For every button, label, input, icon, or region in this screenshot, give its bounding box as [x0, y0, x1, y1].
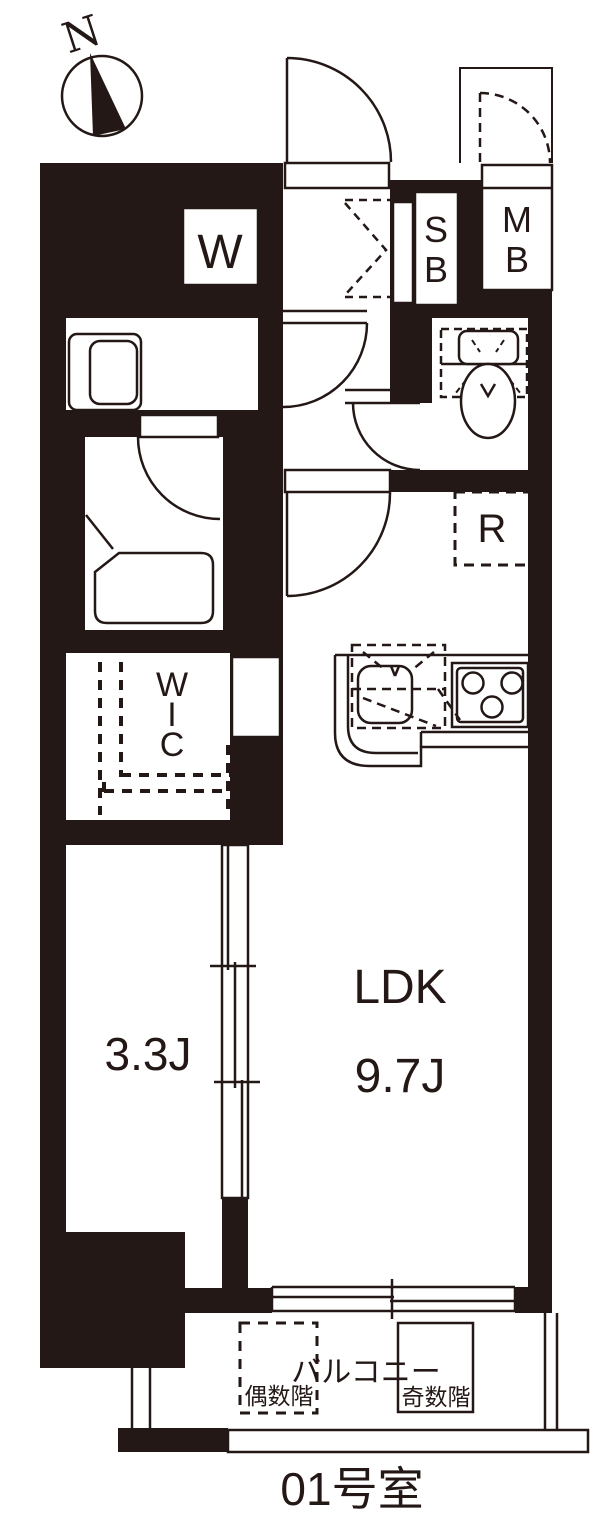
entry-side-panel	[393, 202, 413, 303]
meter-box-label-m: M	[502, 199, 532, 240]
shoe-box-label-s: S	[424, 209, 448, 250]
ldk-size-label: 9.7J	[355, 1050, 446, 1103]
balcony-edge	[228, 1430, 588, 1452]
kitchen-sink	[358, 666, 412, 723]
odd-floor-label: 奇数階	[402, 1384, 471, 1410]
wic-opening	[232, 657, 280, 737]
wic-label-c: C	[160, 726, 185, 764]
entrance-door-leaf	[285, 163, 389, 188]
floor-plan-page: N W S B M B R W I C LDK 9.7J 3.3J バルコニー …	[0, 0, 600, 1537]
even-floor-label: 偶数階	[245, 1383, 314, 1409]
floor-plan: N W S B M B R W I C LDK 9.7J 3.3J バルコニー …	[0, 0, 600, 1537]
washing-machine-label: W	[197, 226, 243, 279]
meter-box-label-b: B	[505, 239, 529, 280]
western-room-size-label: 3.3J	[105, 1028, 192, 1080]
refrigerator-label: R	[478, 507, 507, 551]
shoe-box-label-b: B	[424, 249, 448, 290]
ldk-door-leaf	[285, 470, 390, 492]
room-number-label: 01号室	[280, 1463, 423, 1515]
bathroom-door-leaf	[140, 415, 218, 437]
ldk-label: LDK	[353, 961, 446, 1014]
